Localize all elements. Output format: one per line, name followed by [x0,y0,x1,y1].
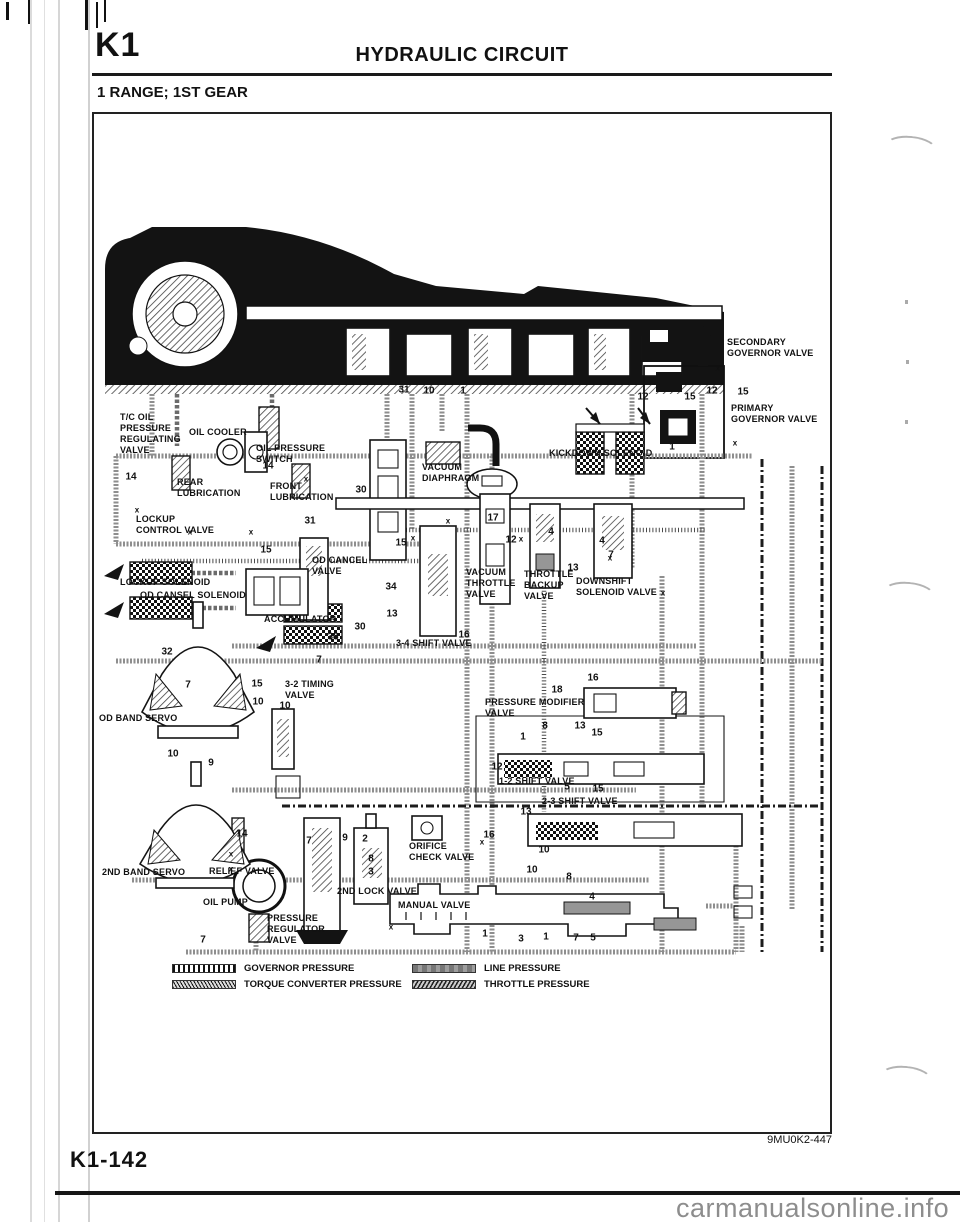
manual-page: K1 HYDRAULIC CIRCUIT 1 RANGE; 1ST GEAR [0,0,960,1222]
binding-streak [30,0,32,1222]
corner-mark [6,2,9,20]
speck [905,420,908,424]
legend-label: THROTTLE PRESSURE [484,979,590,990]
speck [905,300,908,304]
legend-label: LINE PRESSURE [484,963,561,974]
speck [906,360,909,364]
corner-mark [104,0,106,22]
watermark: carmanualsonline.info [676,1193,949,1222]
binding-streak [88,0,90,1222]
corner-mark [28,0,30,24]
legend-item-torque-pressure: TORQUE CONVERTER PRESSURE [172,979,412,990]
throttle-pressure-swatch [412,980,476,989]
corner-mark [96,2,98,28]
legend: GOVERNOR PRESSURELINE PRESSURETORQUE CON… [172,963,652,990]
legend-item-throttle-pressure: THROTTLE PRESSURE [412,979,652,990]
governor-pressure-swatch [172,964,236,973]
binding-streak [58,0,60,1222]
legend-item-line-pressure: LINE PRESSURE [412,963,652,974]
binding-streak [44,0,45,1222]
header-rule [92,73,832,76]
figure-code: 9MU0K2-447 [640,1134,832,1146]
page-number: K1-142 [70,1147,148,1173]
page-title: HYDRAULIC CIRCUIT [92,44,832,67]
legend-label: TORQUE CONVERTER PRESSURE [244,979,402,990]
pencil-arc [884,133,938,162]
gear-range-subtitle: 1 RANGE; 1ST GEAR [97,84,248,101]
legend-label: GOVERNOR PRESSURE [244,963,354,974]
corner-mark [85,0,88,30]
legend-item-governor-pressure: GOVERNOR PRESSURE [172,963,412,974]
pencil-arc [882,579,936,608]
pencil-arc [879,1063,933,1092]
line-pressure-swatch [412,964,476,973]
torque-pressure-swatch [172,980,236,989]
